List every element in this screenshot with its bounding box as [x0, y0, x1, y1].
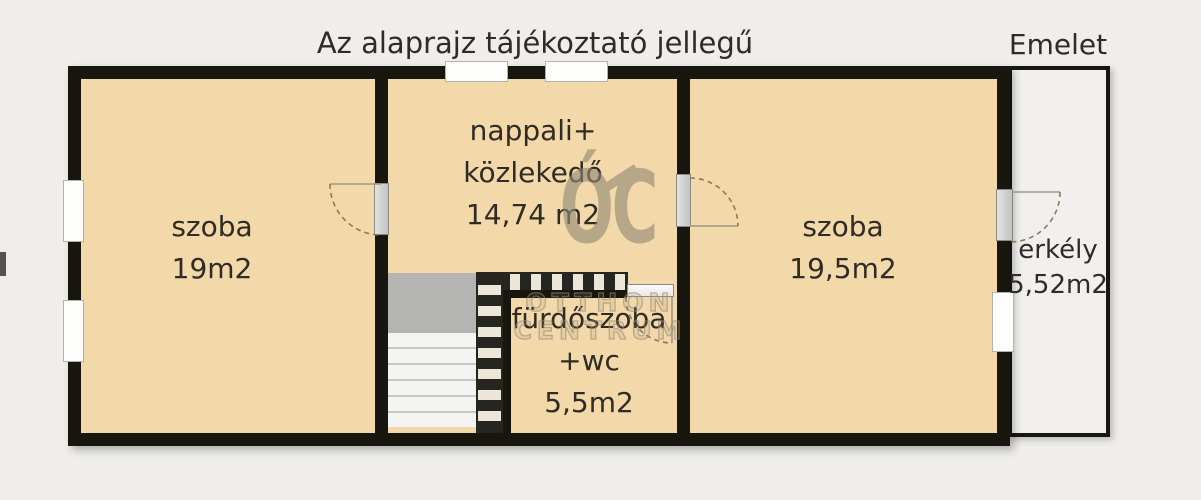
stair-landing — [388, 273, 477, 333]
room-area: 5,5m2 — [489, 382, 689, 424]
window — [545, 61, 608, 82]
window — [445, 61, 508, 82]
door-left-room — [374, 183, 389, 235]
edge-crop-artifact — [0, 252, 6, 276]
wall-left-divider-lower — [375, 235, 388, 446]
room-label-left: szoba 19m2 — [92, 206, 332, 290]
door-right-room — [676, 174, 691, 227]
room-label-right: szoba 19,5m2 — [723, 206, 963, 290]
room-name: fürdőszoba — [489, 298, 689, 340]
room-name: szoba — [723, 206, 963, 248]
stairs — [388, 333, 477, 427]
wall-left-divider-upper — [375, 66, 388, 183]
room-name: szoba — [92, 206, 332, 248]
room-name: erkély — [988, 233, 1128, 268]
window — [63, 300, 84, 362]
room-label-bathroom: fürdőszoba +wc 5,5m2 — [489, 298, 689, 424]
room-area: 19,5m2 — [723, 248, 963, 290]
plan-disclaimer-title: Az alaprajz tájékoztató jellegű — [250, 26, 820, 60]
room-area: 5,52m2 — [988, 268, 1128, 303]
wall-right-divider-upper — [677, 66, 690, 174]
bathroom-inner-wall-top — [503, 290, 627, 298]
room-name: +wc — [489, 340, 689, 382]
room-label-living: nappali+ közlekedő 14,74 m2 — [413, 110, 653, 236]
floor-level-label: Emelet — [978, 28, 1138, 61]
door-bathroom — [627, 284, 674, 297]
room-area: 14,74 m2 — [413, 194, 653, 236]
room-label-balcony: erkély 5,52m2 — [988, 233, 1128, 303]
room-area: 19m2 — [92, 248, 332, 290]
floor-plan-canvas: Az alaprajz tájékoztató jellegű Emelet s… — [0, 0, 1201, 500]
room-name: nappali+ — [413, 110, 653, 152]
window — [63, 180, 84, 242]
room-name: közlekedő — [413, 152, 653, 194]
